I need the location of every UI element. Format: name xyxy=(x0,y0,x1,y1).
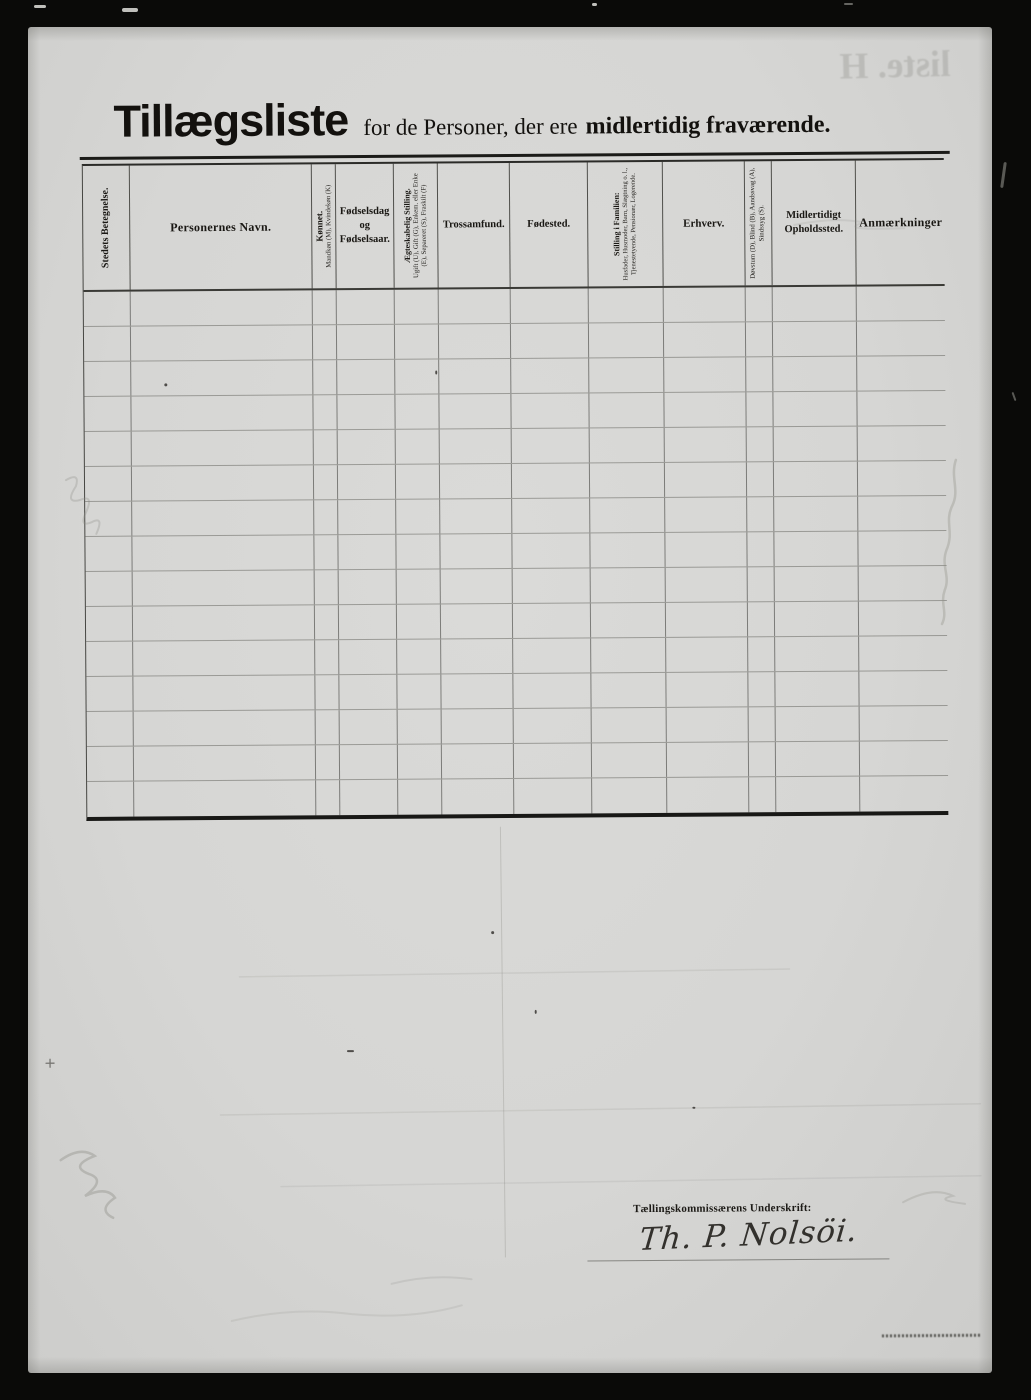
table-cell xyxy=(666,672,748,707)
table-cell xyxy=(666,602,748,637)
table-cell xyxy=(439,324,511,359)
column-header-stedets-betegnelse: Stedets Betegnelse. xyxy=(83,166,131,290)
table-cell xyxy=(85,537,132,571)
column-label: Erhverv. xyxy=(683,216,724,231)
table-cell xyxy=(85,467,132,501)
table-cell xyxy=(315,675,339,709)
table-cell xyxy=(314,465,338,499)
table-cell xyxy=(857,321,946,356)
table-cell xyxy=(316,745,340,779)
bleedthrough-title: liste. H xyxy=(785,42,1006,90)
table-cell xyxy=(773,322,857,357)
table-cell xyxy=(439,289,511,324)
table-cell xyxy=(667,777,749,813)
table-cell xyxy=(665,462,747,497)
table-cell xyxy=(748,567,775,601)
table-cell xyxy=(774,532,858,567)
column-header-midlertidigt-opholdssted: Midlertidigt Opholdssted. xyxy=(772,161,857,286)
title-subtitle-bold: midlertidig fraværende. xyxy=(585,112,830,141)
table-cell xyxy=(397,604,441,638)
column-header-anmaerkninger: Anmærkninger xyxy=(856,160,946,285)
table-cell xyxy=(86,607,133,641)
paper-sheet: liste. H Tillægsliste for de Personer, d… xyxy=(28,27,992,1373)
table-cell xyxy=(314,500,338,534)
table-cell xyxy=(513,673,591,708)
table-cell xyxy=(439,394,511,429)
table-cell xyxy=(748,602,775,636)
table-cell xyxy=(397,569,441,603)
table-cell xyxy=(665,532,747,567)
title-subtitle: for de Personer, der ere xyxy=(363,114,577,141)
column-sublabel: Husfader, Husmoder, Barn, Slægtning o. l… xyxy=(622,166,639,282)
table-cell xyxy=(591,638,666,673)
table-row xyxy=(85,531,946,572)
column-header-foedested: Fødested. xyxy=(510,162,589,287)
table-cell xyxy=(442,744,514,779)
table-cell xyxy=(396,534,440,568)
ink-speck xyxy=(491,931,494,934)
table-cell xyxy=(87,747,134,781)
table-cell xyxy=(316,780,340,815)
column-label: Ægteskabelig Stilling. xyxy=(402,168,413,284)
table-cell xyxy=(339,675,397,709)
signature-line xyxy=(587,1258,889,1261)
table-cell xyxy=(776,707,860,742)
table-cell xyxy=(85,502,132,536)
table-cell xyxy=(441,604,513,639)
table-cell xyxy=(774,497,858,532)
table-row xyxy=(86,671,947,712)
table-cell xyxy=(132,430,314,465)
table-cell xyxy=(313,395,337,429)
table-cell xyxy=(398,709,442,743)
column-sublabel: Ugift (U), Gift (G), Enkem. eller Enke (… xyxy=(412,168,430,284)
table-cell xyxy=(337,360,395,394)
signature-handwriting: Th. P. Nolsöi. xyxy=(638,1213,860,1258)
table-cell xyxy=(340,745,398,779)
table-cell xyxy=(338,535,396,569)
table-cell xyxy=(397,639,441,673)
table-cell xyxy=(666,637,748,672)
column-header-trossamfund: Trossamfund. xyxy=(438,163,511,287)
table-cell xyxy=(132,500,314,535)
table-cell xyxy=(746,392,773,426)
table-row xyxy=(87,776,948,817)
table-cell xyxy=(590,533,665,568)
table-cell xyxy=(441,569,513,604)
table-cell xyxy=(86,642,133,676)
table-cell xyxy=(664,357,746,392)
table-cell xyxy=(337,325,395,359)
table-cell xyxy=(857,286,946,321)
table-row xyxy=(85,461,946,502)
column-header-aegteskabelig-stilling: Ægteskabelig Stilling. Ugift (U), Gift (… xyxy=(394,163,439,287)
column-header-stilling-i-familien: Stilling i Familien: Husfader, Husmoder,… xyxy=(588,162,664,287)
table-cell xyxy=(664,287,746,322)
table-cell xyxy=(512,463,590,498)
table-cell xyxy=(87,712,134,746)
column-label: Stedets Betegnelse. xyxy=(100,169,113,287)
table-cell xyxy=(592,743,667,778)
table-cell xyxy=(313,325,337,359)
column-label: Kønnet. xyxy=(313,167,325,285)
table-cell xyxy=(84,397,131,431)
table-cell xyxy=(748,637,775,671)
scan-speck xyxy=(34,5,46,8)
table-cell xyxy=(396,429,440,463)
column-header-koennet: Kønnet. Mandkøn (M), Kvindekøn (K) xyxy=(312,164,337,288)
table-cell xyxy=(395,324,439,358)
table-row xyxy=(85,426,946,467)
table-row xyxy=(84,356,945,397)
table-row xyxy=(87,706,948,747)
table-cell xyxy=(859,636,948,671)
table-cell xyxy=(589,358,664,393)
table-cell xyxy=(338,500,396,534)
table-cell xyxy=(441,639,513,674)
table-cell xyxy=(749,707,776,741)
table-cell xyxy=(314,535,338,569)
table-cell xyxy=(773,287,857,322)
table-cell xyxy=(774,462,858,497)
table-cell xyxy=(747,427,774,461)
table-cell xyxy=(131,290,313,325)
table-cell xyxy=(513,568,591,603)
column-label: Personernes Navn. xyxy=(170,219,271,236)
table-cell xyxy=(592,778,667,814)
table-cell xyxy=(775,672,859,707)
table-cell xyxy=(396,464,440,498)
table-cell xyxy=(666,567,748,602)
table-cell xyxy=(339,570,397,604)
table-cell xyxy=(665,427,747,462)
column-sublabel: Mandkøn (M), Kvindekøn (K) xyxy=(325,167,334,285)
table-cell xyxy=(590,498,665,533)
table-cell xyxy=(340,710,398,744)
table-cell xyxy=(858,531,947,566)
table-cell xyxy=(314,430,338,464)
table-cell xyxy=(746,357,773,391)
column-label: Trossamfund. xyxy=(443,218,505,233)
table-cell xyxy=(134,745,316,780)
table-cell xyxy=(748,672,775,706)
ink-speck xyxy=(535,1010,537,1014)
table-cell xyxy=(746,287,773,321)
table-cell xyxy=(775,602,859,637)
table-cell xyxy=(774,427,858,462)
ink-speck xyxy=(692,1107,695,1109)
table-cell xyxy=(591,673,666,708)
table-cell xyxy=(313,360,337,394)
scan-speck xyxy=(122,8,138,12)
table-cell xyxy=(398,779,442,814)
table-cell xyxy=(316,710,340,744)
column-label: Anmærkninger xyxy=(859,214,942,231)
table-cell xyxy=(133,675,315,710)
table-cell xyxy=(513,603,591,638)
table-cell xyxy=(591,568,666,603)
ink-speck xyxy=(347,1050,354,1052)
table-cell xyxy=(440,534,512,569)
scan-speck xyxy=(844,3,853,5)
table-row xyxy=(84,321,945,362)
signature-label: Tællingskommissærens Underskrift: xyxy=(633,1202,812,1215)
table-cell xyxy=(396,499,440,533)
table-cell xyxy=(776,777,860,813)
table-row xyxy=(84,391,945,432)
table-cell xyxy=(776,742,860,777)
table-cell xyxy=(860,741,949,776)
column-header-doevstum: Døvstum (D), Blind (B), Aandssvag (A), S… xyxy=(745,161,773,285)
table-cell xyxy=(859,601,948,636)
table-cell xyxy=(84,292,131,326)
table-cell xyxy=(86,572,133,606)
table-cell xyxy=(511,288,589,323)
table-cell xyxy=(859,566,948,601)
table-cell xyxy=(340,780,398,815)
table-row xyxy=(86,566,947,607)
ink-speck xyxy=(435,370,437,374)
scan-edge-mark xyxy=(1000,162,1007,188)
table-cell xyxy=(664,392,746,427)
table-cell xyxy=(775,567,859,602)
column-label: Midlertidigt Opholdssted. xyxy=(780,208,847,237)
table-cell xyxy=(397,674,441,708)
table-cell xyxy=(442,709,514,744)
table-cell xyxy=(511,358,589,393)
table-cell xyxy=(87,782,134,817)
table-row xyxy=(86,636,947,677)
table-cell xyxy=(440,464,512,499)
table-cell xyxy=(858,426,947,461)
table-row xyxy=(86,601,947,642)
table-cell xyxy=(591,603,666,638)
table-cell xyxy=(133,570,315,605)
table-cell xyxy=(857,356,946,391)
column-label: Døvstum (D), Blind (B), Aandssvag (A), S… xyxy=(749,167,767,279)
table-cell xyxy=(441,674,513,709)
table-cell xyxy=(315,570,339,604)
table-cell xyxy=(589,288,664,323)
table-header-row: Stedets Betegnelse. Personernes Navn. Kø… xyxy=(83,160,945,292)
table-cell xyxy=(860,776,949,812)
table-cell xyxy=(338,465,396,499)
table-cell xyxy=(315,605,339,639)
table-body xyxy=(84,286,949,817)
table-cell xyxy=(398,744,442,778)
table-cell xyxy=(667,742,749,777)
column-label: Fødested. xyxy=(527,217,570,231)
printer-imprint xyxy=(882,1334,980,1338)
table-cell xyxy=(395,289,439,323)
table-cell xyxy=(339,605,397,639)
table-row xyxy=(84,286,945,327)
table-row xyxy=(87,741,948,782)
table-cell xyxy=(511,393,589,428)
table-cell xyxy=(131,360,313,395)
table-cell xyxy=(667,707,749,742)
table-cell xyxy=(664,322,746,357)
table-cell xyxy=(857,391,946,426)
table-cell xyxy=(131,395,313,430)
scan-speck xyxy=(592,3,597,6)
column-label: Fødselsdag og Fødselsaar. xyxy=(340,205,390,248)
table-cell xyxy=(132,535,314,570)
column-header-erhverv: Erhverv. xyxy=(663,161,746,286)
table-cell xyxy=(440,499,512,534)
table-cell xyxy=(511,323,589,358)
table-cell xyxy=(337,290,395,324)
table-cell xyxy=(514,778,592,814)
table-cell xyxy=(858,496,947,531)
column-header-personernes-navn: Personernes Navn. xyxy=(130,164,313,289)
table-cell xyxy=(773,357,857,392)
table-cell xyxy=(589,323,664,358)
table-cell xyxy=(513,638,591,673)
table-cell xyxy=(313,290,337,324)
table-cell xyxy=(514,708,592,743)
table-cell xyxy=(440,429,512,464)
table-cell xyxy=(775,637,859,672)
table-cell xyxy=(860,706,949,741)
table-cell xyxy=(442,779,514,815)
table-cell xyxy=(859,671,948,706)
table-cell xyxy=(133,640,315,675)
table-cell xyxy=(84,362,131,396)
table-cell xyxy=(337,395,395,429)
table-cell xyxy=(134,780,316,816)
census-table: Stedets Betegnelse. Personernes Navn. Kø… xyxy=(82,158,949,821)
title-main: Tillægsliste xyxy=(113,94,348,148)
table-cell xyxy=(134,710,316,745)
table-cell xyxy=(395,359,439,393)
table-cell xyxy=(590,463,665,498)
table-cell xyxy=(749,777,776,812)
page-title: Tillægsliste for de Personer, der ere mi… xyxy=(113,91,830,148)
ink-speck xyxy=(164,383,167,386)
table-cell xyxy=(590,428,665,463)
table-cell xyxy=(339,640,397,674)
table-cell xyxy=(747,497,774,531)
table-cell xyxy=(747,532,774,566)
table-cell xyxy=(665,497,747,532)
sheet-content: liste. H Tillægsliste for de Personer, d… xyxy=(23,24,996,1377)
table-cell xyxy=(749,742,776,776)
table-cell xyxy=(512,533,590,568)
table-cell xyxy=(84,327,131,361)
table-cell xyxy=(858,461,947,496)
table-cell xyxy=(746,322,773,356)
table-cell xyxy=(86,677,133,711)
table-cell xyxy=(133,605,315,640)
table-cell xyxy=(592,708,667,743)
table-cell xyxy=(132,465,314,500)
table-row xyxy=(85,496,946,537)
table-cell xyxy=(589,393,664,428)
table-cell xyxy=(773,392,857,427)
table-cell xyxy=(514,743,592,778)
table-cell xyxy=(512,498,590,533)
column-header-foedselsdag: Fødselsdag og Fødselsaar. xyxy=(336,164,395,288)
table-cell xyxy=(512,428,590,463)
table-cell xyxy=(439,359,511,394)
table-cell xyxy=(747,462,774,496)
table-cell xyxy=(395,394,439,428)
table-cell xyxy=(338,430,396,464)
scan-edge-mark xyxy=(1012,392,1017,401)
table-cell xyxy=(315,640,339,674)
table-cell xyxy=(131,325,313,360)
table-cell xyxy=(85,432,132,466)
